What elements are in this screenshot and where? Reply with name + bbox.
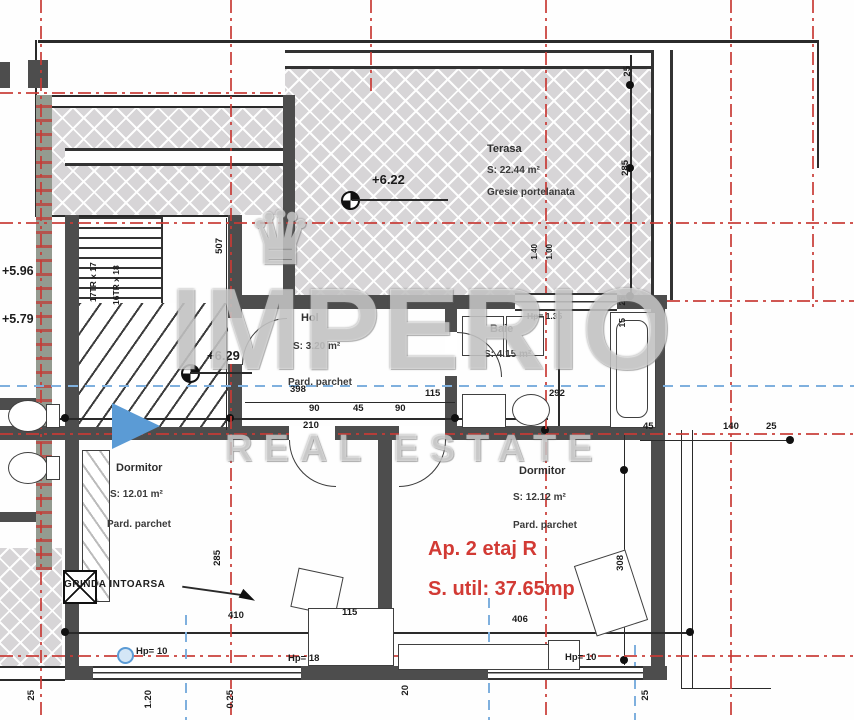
desk xyxy=(574,549,648,636)
sink xyxy=(462,394,506,428)
level-terrace: +6.22 xyxy=(372,172,405,187)
mid-parapet xyxy=(65,148,285,166)
stair-flight-a-label: 17TR x 17 xyxy=(88,222,98,302)
toilet-tank xyxy=(46,404,60,428)
dim-label: 115 xyxy=(425,388,440,399)
level-line xyxy=(190,372,252,374)
dim-label: 406 xyxy=(512,614,528,625)
door-opening xyxy=(445,332,457,376)
dim-label: 45 xyxy=(643,421,654,432)
bathtub-inner xyxy=(616,320,648,418)
dim-label: 90 xyxy=(395,403,406,414)
leader-line xyxy=(182,586,244,596)
neighbor-hatch xyxy=(0,548,62,666)
door-arc xyxy=(399,440,446,487)
room-floor-terasa: Gresie portelanata xyxy=(487,187,575,198)
room-area-terasa: S: 22.44 m² xyxy=(487,165,540,176)
axis-line xyxy=(812,0,814,310)
outer-frame-top xyxy=(38,40,818,43)
dim-label: 292 xyxy=(549,388,565,399)
axis-line xyxy=(0,92,285,94)
dim-dot xyxy=(61,628,69,636)
dim-dot xyxy=(451,414,459,422)
door-arc xyxy=(289,440,336,487)
dim-label: 285 xyxy=(212,550,223,566)
dim-label: 507 xyxy=(214,238,225,254)
room-floor-dormitor-left: Pard. parchet xyxy=(107,519,171,530)
dim-line xyxy=(245,402,455,403)
parapet-height-left: Hp= 10 xyxy=(136,646,167,657)
axis-line xyxy=(0,222,854,224)
floor-plan: Terasa S: 22.44 m² Gresie portelanata Ho… xyxy=(0,0,854,720)
parapet-height-right: Hp= 10 xyxy=(565,652,596,663)
parapet-line xyxy=(35,95,285,97)
room-area-hol: S: 3.20 m² xyxy=(293,341,340,352)
toilet xyxy=(8,400,48,432)
dim-label: 285 xyxy=(620,160,631,176)
apartment-left-wall xyxy=(65,215,79,680)
dim-label: 15 xyxy=(617,318,627,327)
dim-line xyxy=(640,440,790,441)
party-wall xyxy=(36,95,52,570)
room-area-dormitor-left: S: 12.01 m² xyxy=(110,489,163,500)
axis-line xyxy=(370,0,372,92)
dim-label: 25 xyxy=(622,66,633,77)
terrace-door-window xyxy=(515,293,617,311)
beam-annotation: GRINDA INTOARSA xyxy=(64,579,165,590)
axis-line xyxy=(667,300,854,302)
section-arrow-icon xyxy=(112,403,160,449)
dim-dot xyxy=(626,81,634,89)
dim-label: 410 xyxy=(228,610,244,621)
window-marker-icon xyxy=(117,647,134,664)
level-line xyxy=(352,199,448,201)
wall-line xyxy=(0,666,65,668)
terrace-hatch-main xyxy=(285,63,653,300)
axis-line xyxy=(40,0,42,720)
terrace-parapet-right xyxy=(651,50,673,300)
dim-label: 25 xyxy=(26,690,37,701)
room-name-dormitor-left: Dormitor xyxy=(116,462,162,474)
dim-label: 210 xyxy=(303,420,319,431)
bed xyxy=(398,644,550,670)
wall-segment xyxy=(28,60,48,88)
dim-label: 398 xyxy=(290,384,306,395)
dim-label: 115 xyxy=(342,607,357,618)
dim-label: 20 xyxy=(400,685,411,696)
dim-label: 45 xyxy=(353,403,364,414)
parapet-line xyxy=(35,106,285,108)
dim-label: 1.00 xyxy=(545,244,554,260)
stair-terrace-wall xyxy=(283,95,295,300)
apartment-title: Ap. 2 etaj R xyxy=(428,538,537,561)
dim-dot xyxy=(786,436,794,444)
dim-label: 90 xyxy=(309,403,320,414)
room-area-dormitor-right: S: 12.12 m² xyxy=(513,492,566,503)
bath-partition xyxy=(558,310,560,426)
dim-label: 1.20 xyxy=(143,690,154,709)
dim-label: 0.25 xyxy=(225,690,236,709)
apartment-area: S. util: 37.65mp xyxy=(428,578,575,601)
parapet-height-mid: Hp= 18 xyxy=(288,653,319,664)
exterior-line xyxy=(681,430,682,688)
dim-line xyxy=(630,55,632,300)
dim-dot xyxy=(626,292,634,300)
dim-label: 140 xyxy=(723,421,739,432)
outer-frame-right xyxy=(817,40,819,168)
dim-label: 308 xyxy=(615,555,626,571)
toilet xyxy=(8,452,48,484)
stair-flight-b-label: 16TR x 18 xyxy=(111,225,121,305)
dim-dot xyxy=(620,656,628,664)
level-stair-upper: +5.96 xyxy=(2,264,34,278)
dim-label: 25 xyxy=(766,421,777,432)
axis-line xyxy=(545,0,547,720)
terrace-parapet-top xyxy=(285,50,667,69)
room-name-baie: Baie xyxy=(490,323,513,335)
window xyxy=(93,666,301,680)
utility-line xyxy=(634,645,636,720)
dim-label: 25 xyxy=(640,690,651,701)
door-opening xyxy=(399,426,445,440)
dim-line xyxy=(226,218,227,430)
room-name-hol: Hol xyxy=(301,312,319,324)
parapet-height-baie: Hp= 1.35 xyxy=(527,311,562,321)
room-floor-dormitor-right: Pard. parchet xyxy=(513,520,577,531)
axis-line xyxy=(730,0,732,720)
toilet xyxy=(512,394,550,426)
toilet-tank xyxy=(46,456,60,480)
exterior-line xyxy=(692,430,693,688)
level-hall: +6.29 xyxy=(207,348,240,363)
dim-label: 1.40 xyxy=(530,244,539,260)
neighbor-wall xyxy=(0,512,36,522)
exterior-line xyxy=(681,688,771,689)
leader-arrow-icon xyxy=(239,589,258,605)
room-area-baie: S: 4.15 m² xyxy=(484,349,531,360)
level-stair-lower: +5.79 xyxy=(2,312,34,326)
dim-dot xyxy=(61,414,69,422)
dim-dot xyxy=(686,628,694,636)
dim-label: 25 xyxy=(617,296,627,305)
dim-dot xyxy=(620,466,628,474)
utility-line xyxy=(0,385,854,387)
room-name-terasa: Terasa xyxy=(487,143,522,155)
wall-line xyxy=(0,679,65,681)
room-name-dormitor-right: Dormitor xyxy=(519,465,565,477)
door-arc xyxy=(242,318,287,365)
wall-segment xyxy=(0,62,10,88)
